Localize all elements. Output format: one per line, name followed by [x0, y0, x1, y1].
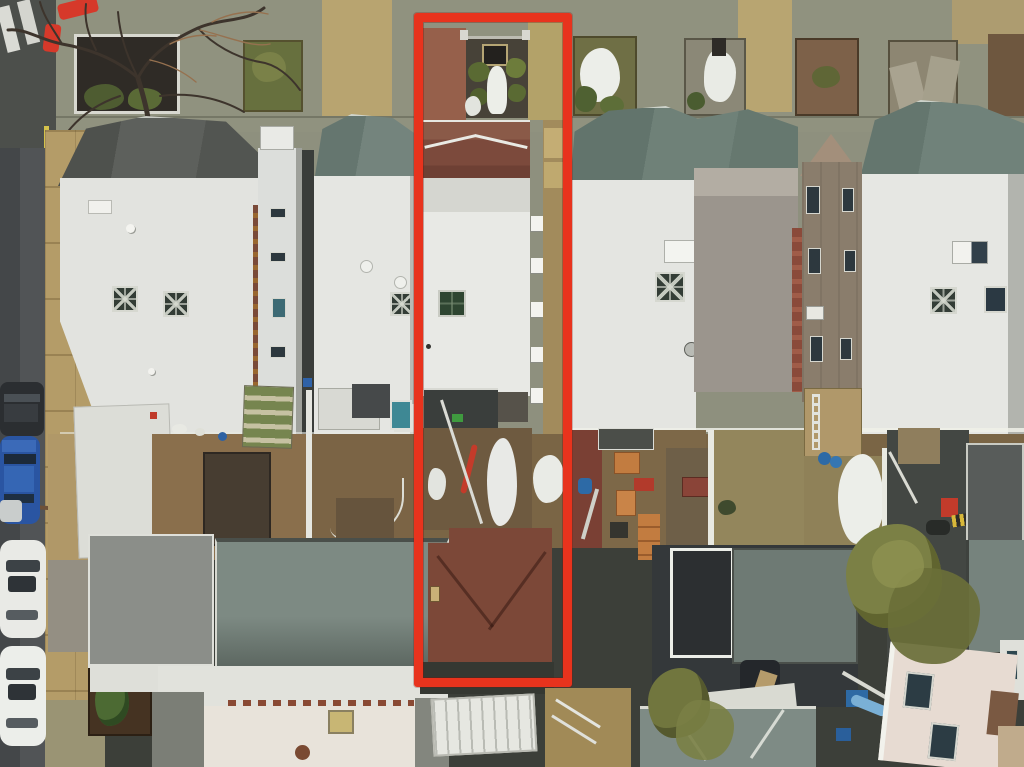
- car-sunroof: [8, 576, 36, 592]
- teal-skylight: [390, 400, 412, 430]
- small-window: [806, 186, 820, 214]
- teal-window: [903, 671, 935, 710]
- motorcycle: [926, 520, 950, 535]
- small-window: [840, 338, 852, 360]
- metal-seam-roof-upper: [694, 168, 798, 196]
- corner-tan-patch: [998, 726, 1024, 767]
- car-windshield: [6, 668, 40, 680]
- dark-bush: [718, 500, 736, 515]
- skylight: [163, 291, 189, 317]
- car-hood: [2, 440, 36, 452]
- patio-stones: [336, 498, 394, 542]
- roof-vent: [126, 224, 135, 233]
- parked-car-white: [0, 646, 46, 746]
- white-truck-bed: [0, 500, 22, 522]
- roof-hatch: [88, 200, 112, 214]
- lower-roof-white: [203, 706, 417, 767]
- orange-sofa: [614, 452, 640, 474]
- rooftop-box: [260, 126, 294, 150]
- roof-vent-dome: [360, 260, 373, 273]
- extension-roof-dark: [352, 384, 390, 418]
- pavement-tan-patch: [322, 0, 392, 116]
- pyramid-roof-house: [88, 534, 214, 668]
- small-window: [270, 252, 286, 262]
- yard-pavers-olive: [714, 430, 804, 548]
- roof-edge-shadow: [1008, 174, 1024, 434]
- small-window: [842, 188, 854, 212]
- roof-vent-dome: [394, 276, 407, 289]
- rowhouse-a-roof: [60, 178, 258, 434]
- brick-edge-strip: [792, 228, 802, 392]
- white-bag: [172, 424, 187, 434]
- tan-skylight: [328, 710, 354, 734]
- small-window: [808, 248, 821, 274]
- small-window: [810, 336, 823, 362]
- blue-barrel: [578, 478, 592, 494]
- front-garden-bed: [988, 34, 1024, 116]
- small-window: [270, 346, 286, 358]
- wood-stairs: [898, 428, 940, 464]
- pergola-frame: [598, 428, 654, 450]
- car-sunroof: [8, 684, 36, 700]
- car-windshield: [4, 394, 40, 402]
- red-cushion: [634, 478, 654, 491]
- dark-cushion: [610, 522, 628, 538]
- car-rear-window: [6, 610, 38, 620]
- parked-car-dark: [0, 382, 44, 436]
- aerial-photo: [0, 0, 1024, 767]
- skylight: [112, 286, 138, 312]
- pavement-tan-patch: [738, 0, 792, 112]
- car-windshield: [6, 560, 40, 572]
- dark-tarp-cover: [203, 452, 271, 546]
- roof-hatch-split: [952, 241, 988, 264]
- blue-bin: [303, 378, 312, 387]
- blue-bucket: [218, 432, 227, 441]
- red-table: [682, 477, 710, 497]
- orange-sofa: [616, 490, 636, 516]
- small-window: [270, 208, 286, 218]
- small-window: [272, 298, 286, 318]
- roof-vent: [148, 368, 155, 375]
- skylight: [655, 272, 685, 302]
- garden-shrub: [687, 92, 705, 110]
- striped-awning: [242, 385, 294, 449]
- roof-shadow-facet: [217, 600, 447, 666]
- blue-barrel: [830, 456, 842, 468]
- small-window: [844, 250, 856, 272]
- rowhouse-e-roof: [572, 180, 696, 434]
- white-lattice-pergola: [670, 548, 734, 658]
- gray-hip-roof: [732, 548, 858, 664]
- red-item: [150, 412, 157, 419]
- white-utility-box: [806, 306, 824, 320]
- white-deck-rail: [431, 693, 538, 756]
- teal-window: [928, 722, 960, 761]
- car-roof: [4, 404, 38, 422]
- car-windshield: [4, 454, 36, 464]
- garden-shrub: [812, 66, 840, 88]
- parked-car-white: [0, 540, 46, 638]
- white-item: [195, 428, 205, 436]
- car-roof: [4, 466, 34, 492]
- deck-ladder: [812, 394, 820, 450]
- round-vent: [295, 745, 310, 760]
- skylight: [930, 287, 957, 314]
- metal-seam-roof: [694, 196, 798, 392]
- property-boundary-highlight: [414, 13, 572, 687]
- olive-tree-light: [872, 540, 924, 588]
- shingle-corner: [152, 692, 204, 767]
- blue-barrel: [818, 452, 831, 465]
- teal-window: [984, 286, 1007, 313]
- dark-planter: [712, 38, 726, 56]
- blue-bin: [836, 728, 851, 741]
- car-rear-window: [6, 718, 38, 728]
- dark-hip-roof: [966, 443, 1024, 547]
